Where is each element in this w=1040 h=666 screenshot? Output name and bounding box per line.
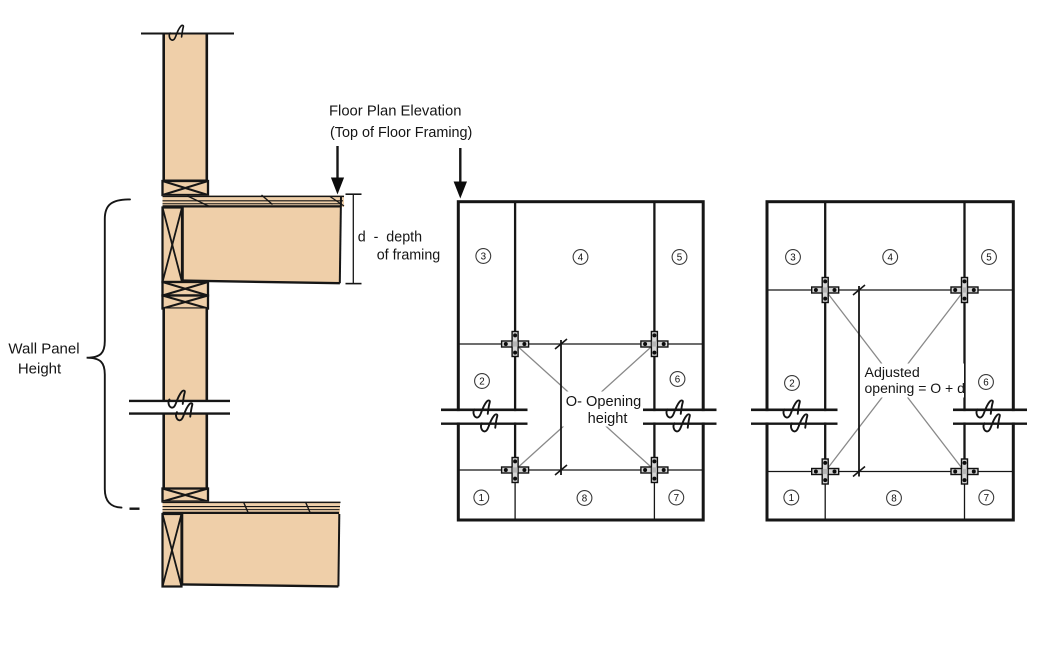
svg-text:6: 6 [675, 374, 681, 385]
svg-text:of framing: of framing [377, 248, 441, 264]
svg-text:7: 7 [674, 493, 679, 504]
svg-text:Wall Panel: Wall Panel [8, 341, 79, 358]
svg-text:O- Opening: O- Opening [566, 394, 641, 410]
svg-text:2: 2 [789, 378, 794, 389]
svg-text:6: 6 [983, 377, 989, 388]
svg-text:height: height [588, 411, 628, 427]
svg-text:(Top of Floor Framing): (Top of Floor Framing) [330, 125, 472, 141]
svg-text:Adjusted: Adjusted [865, 365, 920, 381]
svg-text:d - depth: d - depth [358, 230, 422, 246]
svg-text:3: 3 [790, 252, 796, 263]
svg-text:2: 2 [479, 376, 484, 387]
svg-text:8: 8 [582, 493, 588, 504]
svg-text:4: 4 [887, 252, 893, 263]
svg-text:3: 3 [481, 251, 487, 262]
svg-text:5: 5 [677, 252, 683, 263]
svg-text:Height: Height [18, 361, 62, 378]
svg-text:1: 1 [479, 493, 484, 504]
svg-text:5: 5 [986, 252, 992, 263]
svg-text:4: 4 [578, 252, 584, 263]
svg-text:1: 1 [789, 493, 794, 504]
svg-text:opening = O + d: opening = O + d [865, 380, 965, 396]
svg-text:7: 7 [984, 493, 989, 504]
svg-text:Floor Plan Elevation: Floor Plan Elevation [329, 104, 461, 120]
svg-text:8: 8 [891, 493, 897, 504]
